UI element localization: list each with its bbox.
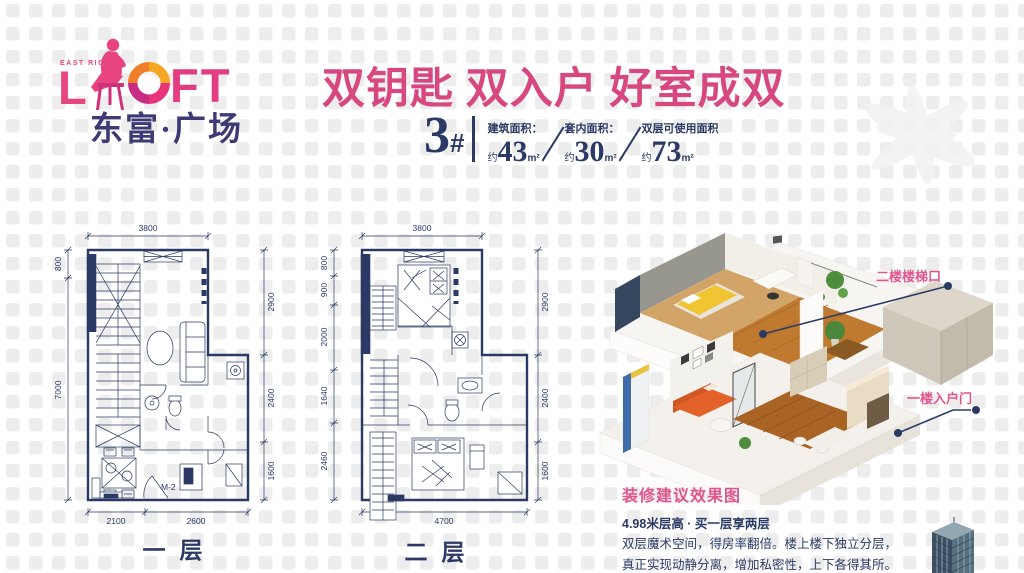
loft-3d-render: 二楼楼梯口 一楼入户门: [585, 205, 1005, 505]
caption-line2: 真正实现动静分离，增加私密性，上下各得其所。: [622, 557, 962, 573]
svg-text:3800: 3800: [139, 223, 158, 233]
bedroom-furniture: [180, 450, 242, 490]
dining-set: [102, 448, 136, 498]
caption-title: 装修建议效果图: [622, 482, 962, 506]
stat-inner-area: 套内面积： 约30m²: [564, 120, 619, 167]
svg-text:2600: 2600: [187, 516, 206, 526]
living-room-furniture: [147, 322, 205, 382]
brand-logo: EAST RICH L FT 东富·广场: [52, 36, 282, 156]
svg-text:1600: 1600: [540, 461, 550, 480]
stairs: [370, 355, 398, 425]
svg-text:800: 800: [53, 257, 63, 271]
wardrobe: [370, 286, 396, 330]
stairs: [96, 264, 140, 447]
stat-usable-area: 双层可使用面积 约73m²: [641, 120, 718, 167]
loft-letter-l: L: [58, 64, 87, 111]
building-render-thumbnail: [912, 516, 992, 573]
stats-divider: [472, 116, 475, 162]
stat-separator: [619, 127, 642, 162]
svg-text:1640: 1640: [319, 386, 329, 405]
window-icon: [144, 251, 182, 262]
unit-number: 3#: [424, 110, 464, 162]
poster: EAST RICH L FT 东富·广场 双钥匙: [0, 0, 1024, 573]
floorplan-second-floor: 3800 800 900 2000 1640 2460 2900 2400 16…: [300, 220, 555, 530]
floor-symbol: [452, 332, 468, 348]
floorplan-first-floor: 3800 800 7000 2900 2400 1600 2100 2600: [48, 220, 283, 530]
svg-text:二楼楼梯口: 二楼楼梯口: [876, 269, 941, 284]
svg-text:一楼入户门: 一楼入户门: [907, 391, 972, 406]
svg-text:3800: 3800: [413, 223, 432, 233]
bathroom: [445, 355, 500, 421]
svg-text:2460: 2460: [319, 451, 329, 470]
caption-line1: 双层魔术空间，得房率翻倍。楼上楼下独立分层，: [622, 536, 962, 553]
svg-text:2000: 2000: [319, 327, 329, 346]
bed-upper: [398, 265, 450, 327]
svg-text:2400: 2400: [540, 388, 550, 407]
loft-letter-o-aperture-icon: [128, 62, 170, 104]
solid-wall: [87, 254, 97, 332]
window-icon: [404, 251, 444, 262]
bedroom-lower: [370, 432, 522, 520]
stat-built-area: 建筑面积： 约43m²: [487, 120, 542, 167]
stat-separator: [542, 127, 565, 162]
svg-text:2400: 2400: [266, 388, 276, 407]
interior-walls: [362, 326, 527, 425]
door-label: M-2: [161, 482, 176, 492]
floorplan-label-first: 一层: [48, 531, 297, 565]
unit-stats: 3# 建筑面积： 约43m² 套内面积： 约30m² 双层可使用面积 约73m²: [424, 110, 718, 167]
svg-text:1600: 1600: [266, 461, 276, 480]
svg-text:7000: 7000: [53, 380, 63, 399]
brand-name-chinese: 东富·广场: [90, 102, 243, 150]
svg-text:800: 800: [319, 256, 329, 270]
caption-subtitle: 4.98米层高 · 买一层享两层: [622, 513, 962, 532]
solid-wall: [361, 254, 371, 354]
render-caption: 装修建议效果图 4.98米层高 · 买一层享两层 双层魔术空间，得房率翻倍。楼上…: [622, 482, 962, 573]
svg-text:2900: 2900: [540, 292, 550, 311]
main-headline: 双钥匙 双入户 好室成双: [322, 54, 842, 116]
watermark-ornament: [820, 55, 1020, 215]
svg-text:2100: 2100: [107, 516, 126, 526]
svg-text:900: 900: [319, 283, 329, 297]
svg-text:4700: 4700: [435, 516, 454, 526]
svg-text:2900: 2900: [266, 292, 276, 311]
floorplan-label-second: 二层: [300, 533, 569, 567]
